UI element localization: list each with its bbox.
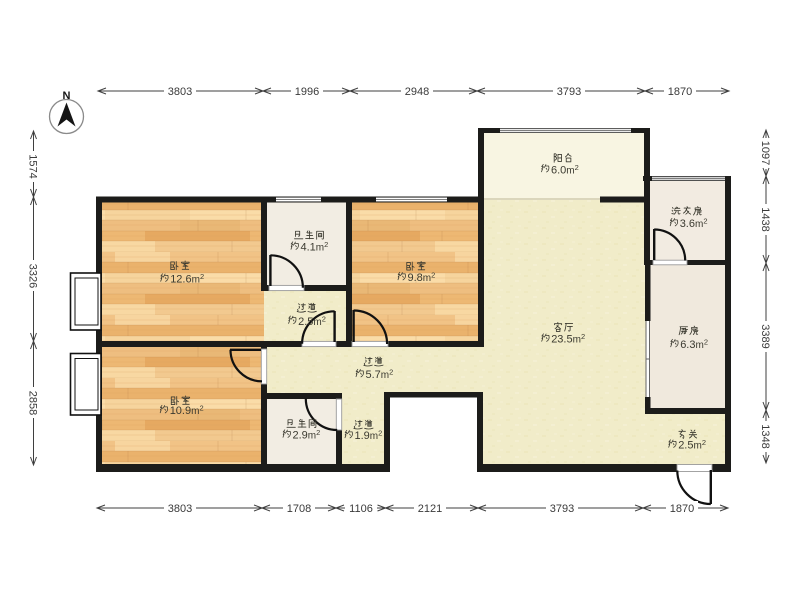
svg-text:2121: 2121 — [418, 503, 442, 515]
svg-text:6.3m2: 6.3m2 — [680, 338, 708, 352]
svg-text:1870: 1870 — [670, 503, 694, 515]
svg-text:3389: 3389 — [759, 324, 771, 348]
svg-text:23.5m2: 23.5m2 — [551, 332, 585, 346]
svg-text:3803: 3803 — [168, 86, 192, 98]
svg-text:2.5m2: 2.5m2 — [678, 438, 706, 452]
svg-text:1870: 1870 — [668, 86, 692, 98]
svg-text:10.9m2: 10.9m2 — [170, 404, 204, 418]
svg-text:12.6m2: 12.6m2 — [170, 272, 204, 286]
svg-text:2.5m2: 2.5m2 — [298, 314, 326, 328]
svg-text:3793: 3793 — [557, 86, 581, 98]
svg-text:2948: 2948 — [405, 86, 429, 98]
svg-text:1996: 1996 — [295, 86, 319, 98]
svg-text:1348: 1348 — [759, 424, 771, 448]
svg-text:2858: 2858 — [27, 391, 39, 415]
svg-text:1574: 1574 — [27, 154, 39, 178]
svg-text:1708: 1708 — [287, 503, 311, 515]
svg-text:3793: 3793 — [550, 503, 574, 515]
svg-text:1438: 1438 — [759, 207, 771, 231]
svg-text:3326: 3326 — [27, 264, 39, 288]
svg-text:1106: 1106 — [349, 503, 373, 515]
svg-text:3803: 3803 — [168, 503, 192, 515]
svg-text:1097: 1097 — [759, 141, 771, 165]
svg-text:3.6m2: 3.6m2 — [680, 217, 708, 231]
svg-text:N: N — [63, 90, 71, 102]
